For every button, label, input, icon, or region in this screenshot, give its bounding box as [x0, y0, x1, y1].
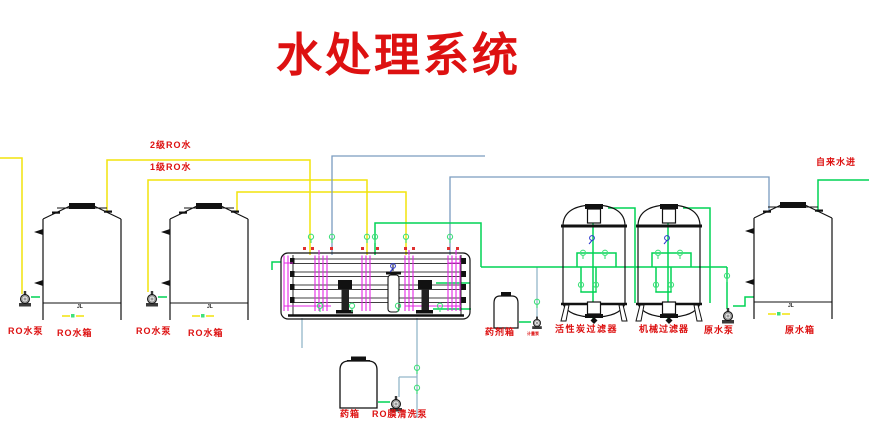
label-ro-pump-2: RO水泵 [136, 327, 172, 336]
label-ro-pump-1: RO水泵 [8, 327, 44, 336]
page-title: 水处理系统 [276, 30, 521, 81]
label-ro-tank-2: RO水箱 [188, 329, 224, 338]
raw-water-pump-icon [722, 308, 734, 324]
label-ro-cleaning-pump: RO膜清洗泵 [372, 410, 428, 419]
label-carbon-filter: 活性炭过滤器 [555, 325, 618, 334]
cartridge-filter [386, 264, 401, 312]
label-tap-water-inlet: 自来水进 [816, 158, 856, 167]
label-raw-water-pump: 原水泵 [704, 326, 734, 335]
label-stage1-ro-water: 1级RO水 [150, 163, 192, 172]
drain-tag-3: JL [788, 304, 794, 309]
label-dosing-pump: 计量泵 [527, 332, 539, 336]
ro-pump-2-icon [146, 291, 158, 307]
label-chemical-tank: 药箱 [340, 410, 360, 419]
water-treatment-diagram: 水处理系统 2级RO水 1级RO水 自来水进 RO水泵 RO水箱 RO水泵 RO… [0, 0, 869, 425]
dosing-tank-shape [494, 292, 518, 328]
carbon-filter-vessel [561, 204, 627, 324]
drain-tag-2: JL [207, 305, 213, 310]
ro-water-tank-2 [161, 203, 248, 320]
ro-water-tank-1 [34, 203, 121, 320]
label-dosing-tank: 药剂箱 [485, 328, 515, 337]
drain-tag-1: JL [77, 305, 83, 310]
label-ro-tank-1: RO水箱 [57, 329, 93, 338]
label-mechanical-filter: 机械过滤器 [639, 325, 689, 334]
micro-tags-red [303, 247, 459, 250]
hp-pump-tower-2 [416, 280, 433, 314]
label-raw-water-tank: 原水箱 [785, 326, 815, 335]
label-stage2-ro-water: 2级RO水 [150, 141, 192, 150]
raw-water-tank [745, 202, 832, 319]
ro-pump-1-icon [19, 291, 31, 307]
pipes-concentrate-blue [332, 156, 769, 255]
dosing-pump-icon [532, 317, 542, 329]
mechanical-filter-vessel [636, 204, 702, 324]
chemical-tank-shape [340, 357, 377, 409]
